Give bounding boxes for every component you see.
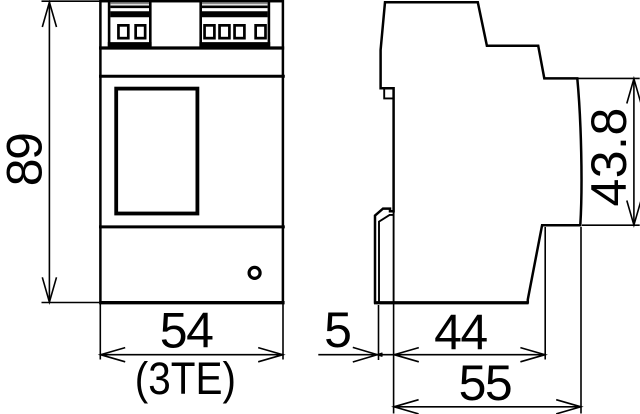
svg-text:(3TE): (3TE)	[135, 354, 236, 404]
svg-text:54: 54	[160, 303, 213, 359]
svg-text:55: 55	[459, 355, 512, 411]
svg-text:89: 89	[0, 134, 53, 187]
svg-text:44: 44	[434, 304, 487, 360]
svg-text:43.8: 43.8	[581, 107, 637, 206]
svg-text:5: 5	[324, 302, 352, 358]
